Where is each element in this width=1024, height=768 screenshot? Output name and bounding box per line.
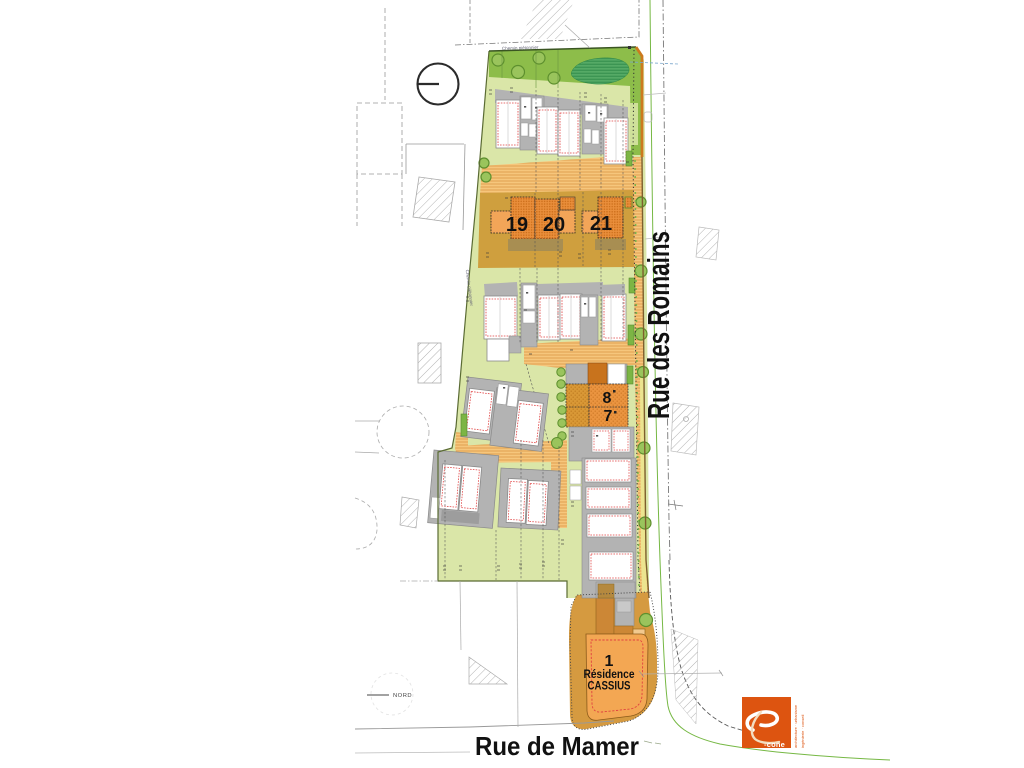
svg-text:NORD: NORD	[393, 693, 412, 699]
svg-text:CASSIUS: CASSIUS	[588, 679, 631, 693]
svg-text:architecture · urbanisme: architecture · urbanisme	[793, 704, 798, 748]
svg-text:Rue de Mamer: Rue de Mamer	[475, 731, 639, 761]
svg-text:Rue des Romains: Rue des Romains	[641, 231, 676, 419]
svg-text:8: 8	[603, 390, 612, 407]
svg-text:1: 1	[605, 653, 614, 670]
svg-text:ingénierie · conseil: ingénierie · conseil	[800, 715, 805, 748]
svg-text:19: 19	[506, 214, 528, 236]
svg-text:7: 7	[604, 408, 613, 425]
svg-text:-cone: -cone	[764, 740, 785, 749]
svg-text:20: 20	[543, 214, 565, 236]
